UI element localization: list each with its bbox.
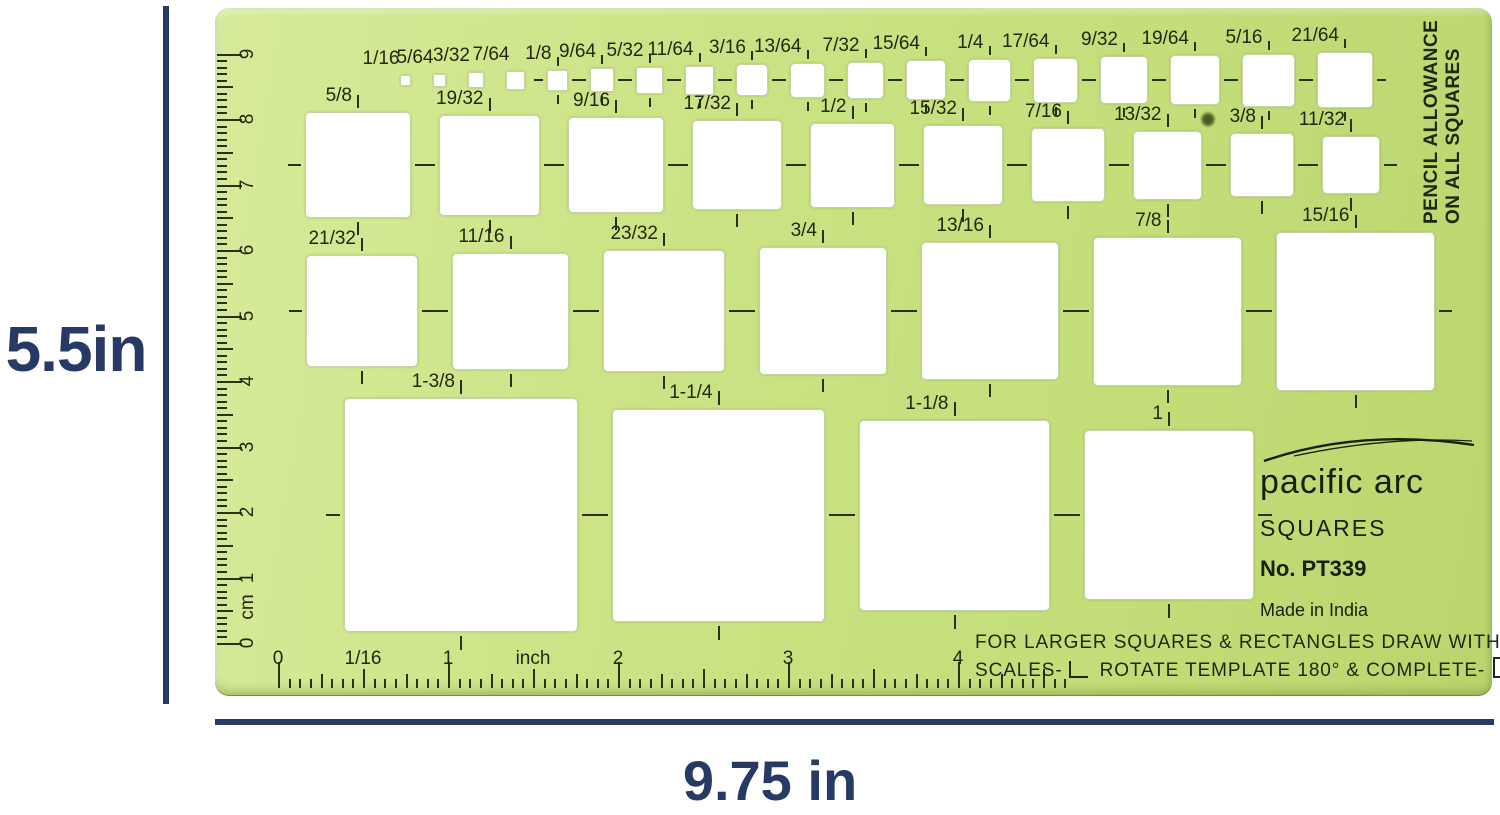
inch-ruler-tick <box>916 674 918 688</box>
square-size-label: 21/32 <box>296 229 356 249</box>
square-left-tick <box>1066 514 1080 516</box>
square-size-label: 1/2 <box>787 97 847 117</box>
square-size-label: 11/64 <box>634 40 694 60</box>
brand-block: pacific arc SQUARES No. PT339 Made in In… <box>1260 434 1485 621</box>
template-square <box>790 63 825 98</box>
template-square <box>603 250 725 372</box>
square-left-tick <box>1157 79 1166 81</box>
cm-ruler-tick <box>217 86 233 88</box>
inch-ruler-tick <box>299 679 301 688</box>
square-left-tick <box>955 79 964 81</box>
cm-ruler-tick <box>217 99 227 101</box>
cm-ruler-tick <box>217 571 227 573</box>
template-square <box>736 64 768 96</box>
square-left-tick <box>675 164 688 166</box>
inch-ruler-tick <box>416 679 418 688</box>
square-right-tick <box>1384 164 1397 166</box>
inch-ruler-tick <box>289 679 291 688</box>
template-square <box>1170 55 1220 105</box>
square-top-tick <box>822 230 824 243</box>
cm-ruler-tick <box>217 204 227 206</box>
cm-ruler-tick <box>217 211 227 213</box>
inch-ruler-tick <box>905 679 907 688</box>
cm-ruler-tick <box>217 145 227 147</box>
inch-ruler-tick <box>661 674 663 688</box>
cm-ruler-tick <box>217 263 227 265</box>
square-bottom-tick <box>460 636 462 650</box>
inch-ruler-tick <box>937 679 939 688</box>
square-size-label: 11/32 <box>1285 110 1345 130</box>
template-square <box>1322 136 1380 194</box>
square-right-tick <box>1439 310 1452 312</box>
template-square <box>506 71 525 90</box>
open-square-icon <box>1069 661 1088 678</box>
template-square <box>810 123 895 208</box>
template-square <box>859 420 1050 611</box>
cm-ruler-tick <box>217 584 227 586</box>
square-size-label: 3/4 <box>757 221 817 241</box>
template-square <box>547 70 568 91</box>
cm-ruler-tick <box>217 499 227 501</box>
cm-ruler-tick <box>217 394 227 396</box>
inch-ruler-tick <box>576 674 578 688</box>
cm-ruler-number: 2 <box>238 502 258 522</box>
brand-swoosh-icon <box>1260 434 1478 464</box>
square-left-tick <box>906 164 919 166</box>
square-left-tick <box>551 164 564 166</box>
height-dimension-label: 5.5in <box>0 312 158 386</box>
square-size-label: 19/64 <box>1129 29 1189 49</box>
template-square <box>590 68 614 92</box>
cm-ruler-tick <box>217 505 227 507</box>
square-bottom-tick <box>865 103 867 112</box>
square-top-tick <box>954 402 956 416</box>
inch-ruler-tick <box>969 679 971 688</box>
cm-ruler-number: 9 <box>238 44 258 64</box>
cm-ruler-number: 4 <box>238 371 258 391</box>
cm-ruler-tick <box>217 93 227 95</box>
square-top-tick <box>1194 42 1196 51</box>
inch-ruler-number: 2 <box>603 649 633 669</box>
cm-ruler-tick <box>217 564 227 566</box>
inch-ruler-tick <box>852 679 854 688</box>
square-left-tick <box>1116 164 1129 166</box>
template-square <box>568 117 664 213</box>
template-square <box>1093 237 1242 386</box>
square-top-tick <box>989 225 991 238</box>
inch-ruler-tick <box>459 679 461 688</box>
square-left-tick <box>723 79 732 81</box>
square-bottom-tick <box>1261 201 1263 214</box>
inch-ruler-tick <box>480 679 482 688</box>
cm-ruler-tick <box>217 224 227 226</box>
inch-ruler-tick <box>522 679 524 688</box>
cm-ruler-tick <box>217 178 227 180</box>
square-bottom-tick <box>1355 395 1357 408</box>
cm-ruler-tick <box>217 309 227 311</box>
square-left-tick <box>326 514 340 516</box>
cm-ruler-tick <box>217 492 227 494</box>
square-left-tick <box>586 310 599 312</box>
inch-ruler-tick <box>607 679 609 688</box>
square-size-label: 19/32 <box>424 89 484 109</box>
cm-ruler-tick <box>217 623 227 625</box>
square-left-tick <box>435 310 448 312</box>
inch-ruler-tick <box>352 679 354 688</box>
square-size-label: 9/32 <box>1058 30 1118 50</box>
inch-ruler-tick <box>831 674 833 688</box>
square-top-tick <box>1167 114 1169 127</box>
inch-ruler-tick <box>406 674 408 688</box>
square-left-tick <box>841 514 855 516</box>
cm-ruler-number: 6 <box>238 240 258 260</box>
square-top-tick <box>1261 116 1263 129</box>
width-dimension-label: 9.75 in <box>570 748 970 813</box>
square-top-tick <box>718 391 720 405</box>
cm-ruler-tick <box>217 597 227 599</box>
cm-ruler-tick <box>217 165 227 167</box>
square-size-label: 3/16 <box>686 38 746 58</box>
template-square <box>305 112 411 218</box>
inch-ruler-tick <box>756 679 758 688</box>
cm-ruler-tick <box>217 80 227 82</box>
inch-ruler-number: 1 <box>433 649 463 669</box>
cm-ruler-tick <box>217 302 227 304</box>
product-series: SQUARES <box>1260 515 1485 542</box>
inch-ruler-tick <box>746 674 748 688</box>
square-size-label: 23/32 <box>598 224 658 244</box>
square-size-label: 5/8 <box>292 86 352 106</box>
square-left-tick <box>777 79 786 81</box>
inch-ruler-tick <box>384 679 386 688</box>
square-size-label: 1-3/8 <box>395 372 455 392</box>
square-bottom-tick <box>1268 111 1270 120</box>
square-left-tick <box>1229 79 1238 81</box>
square-top-tick <box>1055 45 1057 54</box>
template-square <box>1031 128 1105 202</box>
cm-ruler-tick <box>217 191 227 193</box>
square-bottom-tick <box>510 374 512 387</box>
square-top-tick <box>361 238 363 251</box>
cm-ruler-number: 7 <box>238 175 258 195</box>
inch-ruler-tick <box>331 679 333 688</box>
template-square <box>685 66 714 95</box>
cm-ruler-unit-label: cm <box>238 590 258 624</box>
inch-ruler-tick <box>491 674 493 688</box>
inch-ruler-tick <box>639 679 641 688</box>
square-left-tick <box>904 310 917 312</box>
cm-ruler-number: 8 <box>238 109 258 129</box>
height-dimension-line <box>163 6 169 704</box>
inch-ruler-tick <box>533 669 535 688</box>
square-bottom-tick <box>718 626 720 640</box>
square-size-label: 1-1/4 <box>653 383 713 403</box>
template-square <box>452 253 569 370</box>
square-size-label: 1 <box>1103 404 1163 424</box>
inch-ruler-number: 0 <box>263 649 293 669</box>
inch-ruler-tick <box>884 679 886 688</box>
square-left-tick <box>793 164 806 166</box>
cm-ruler-number: 5 <box>238 306 258 326</box>
inch-ruler-tick <box>554 679 556 688</box>
square-top-tick <box>1344 39 1346 48</box>
template-square <box>400 75 411 86</box>
square-left-tick <box>1305 164 1318 166</box>
inch-ruler-tick <box>862 679 864 688</box>
inch-ruler-tick <box>841 679 843 688</box>
cm-ruler-tick <box>217 479 233 481</box>
cm-ruler-tick <box>217 112 227 114</box>
inch-ruler-tick <box>926 679 928 688</box>
square-size-label: 11/16 <box>445 227 505 247</box>
template-square <box>923 125 1003 205</box>
square-left-tick <box>1259 310 1272 312</box>
cm-ruler-tick <box>217 401 227 403</box>
square-right-tick <box>1377 79 1386 81</box>
inch-ruler-tick <box>321 674 323 688</box>
cm-ruler-tick <box>217 158 227 160</box>
square-bottom-tick <box>954 615 956 629</box>
square-top-tick <box>1067 111 1069 124</box>
pencil-allowance-note: PENCIL ALLOWANCE ON ALL SQUARES <box>1421 14 1465 224</box>
square-left-tick <box>1014 164 1027 166</box>
square-left-tick <box>288 164 301 166</box>
square-top-tick <box>489 98 491 111</box>
cm-ruler-number: 1 <box>238 568 258 588</box>
inch-ruler-tick <box>735 679 737 688</box>
inch-ruler-tick <box>809 679 811 688</box>
square-left-tick <box>289 310 302 312</box>
square-left-tick <box>577 79 586 81</box>
cm-ruler-number: 3 <box>238 437 258 457</box>
template-square <box>1276 232 1435 391</box>
inch-ruler-tick <box>374 679 376 688</box>
cm-ruler-tick <box>217 440 227 442</box>
inch-ruler-tick <box>724 679 726 688</box>
cm-ruler-tick <box>217 519 227 521</box>
cm-ruler-tick <box>217 335 227 337</box>
cm-ruler-tick <box>217 414 233 416</box>
square-bottom-tick <box>852 212 854 225</box>
inch-ruler-unit-label: inch <box>503 649 563 669</box>
square-bottom-tick <box>649 98 651 107</box>
cm-ruler-tick <box>217 525 227 527</box>
square-top-tick <box>357 95 359 108</box>
square-top-tick <box>663 233 665 246</box>
square-right-tick <box>573 310 586 312</box>
cm-ruler-tick <box>217 237 227 239</box>
inch-ruler-tick <box>512 679 514 688</box>
square-bottom-tick <box>989 384 991 397</box>
square-left-tick <box>1020 79 1029 81</box>
square-right-tick <box>891 310 904 312</box>
template-square <box>612 409 825 622</box>
square-top-tick <box>1268 41 1270 50</box>
cm-ruler-tick <box>217 604 227 606</box>
cm-ruler-tick <box>217 427 227 429</box>
template-square <box>1242 54 1295 107</box>
inch-ruler-tick <box>682 679 684 688</box>
square-bottom-tick <box>1350 198 1352 211</box>
cm-ruler-tick <box>217 630 227 632</box>
cm-ruler-tick <box>217 361 227 363</box>
inch-ruler-tick <box>469 679 471 688</box>
cm-ruler-tick <box>217 617 227 619</box>
inch-ruler-tick <box>873 669 875 688</box>
cm-ruler-tick <box>217 355 227 357</box>
template-square <box>906 60 946 100</box>
square-left-tick <box>422 164 435 166</box>
square-size-label: 7/8 <box>1102 211 1162 231</box>
inch-ruler-tick <box>342 679 344 688</box>
cm-ruler-tick <box>217 230 227 232</box>
template-square <box>433 74 446 87</box>
square-size-label: 17/64 <box>990 32 1050 52</box>
square-left-tick <box>1087 79 1096 81</box>
cm-ruler-tick <box>217 276 227 278</box>
square-left-tick <box>1076 310 1089 312</box>
inch-ruler-tick <box>437 679 439 688</box>
inch-ruler-tick <box>395 679 397 688</box>
square-right-tick <box>1246 310 1259 312</box>
inch-ruler-tick <box>310 679 312 688</box>
template-square <box>1133 131 1202 200</box>
inch-ruler-graduation-label: 1/16 <box>333 649 393 669</box>
square-size-label: 1-1/8 <box>889 394 949 414</box>
square-top-tick <box>615 100 617 113</box>
square-bottom-tick <box>736 214 738 227</box>
inch-ruler-tick <box>947 679 949 688</box>
cm-ruler-tick <box>217 289 227 291</box>
cm-ruler-tick <box>217 329 227 331</box>
cm-ruler-number: 0 <box>238 633 258 653</box>
square-bottom-tick <box>1168 604 1170 618</box>
cm-ruler-tick <box>217 60 227 62</box>
square-bottom-tick <box>357 222 359 235</box>
brand-name: pacific arc <box>1260 463 1485 502</box>
cm-ruler-tick <box>217 270 227 272</box>
cm-ruler-tick <box>217 610 233 612</box>
inch-ruler-tick <box>692 679 694 688</box>
inch-ruler-tick <box>586 679 588 688</box>
template-square <box>1230 133 1294 197</box>
inch-ruler-tick <box>427 679 429 688</box>
square-bottom-tick <box>1067 206 1069 219</box>
square-left-tick <box>893 79 902 81</box>
inch-ruler-tick <box>820 679 822 688</box>
cm-ruler-tick <box>217 152 233 154</box>
square-size-label: 15/16 <box>1290 206 1350 226</box>
surface-speck <box>1201 112 1215 127</box>
cm-ruler-tick <box>217 486 227 488</box>
cm-ruler-tick <box>217 106 227 108</box>
pencil-allowance-note-line2: ON ALL SQUARES <box>1443 14 1465 224</box>
model-number: No. PT339 <box>1260 556 1485 582</box>
cm-ruler-tick <box>217 368 227 370</box>
square-size-label: 5/16 <box>1203 28 1263 48</box>
template-square <box>1084 430 1254 600</box>
template-square <box>468 72 484 88</box>
cm-ruler-tick <box>217 342 227 344</box>
square-left-tick <box>1304 79 1313 81</box>
square-top-tick <box>1350 119 1352 132</box>
cm-ruler-tick <box>217 460 227 462</box>
template-square <box>1317 52 1373 108</box>
complete-square-icon <box>1493 657 1500 678</box>
square-bottom-tick <box>989 106 991 115</box>
inch-ruler-tick <box>501 679 503 688</box>
inch-ruler-number: 4 <box>943 649 973 669</box>
cm-ruler-tick <box>217 407 227 409</box>
template-square <box>306 255 418 367</box>
cm-ruler-tick <box>217 296 227 298</box>
square-size-label: 13/16 <box>924 216 984 236</box>
cm-ruler-tick <box>217 132 227 134</box>
origin-label: Made in India <box>1260 600 1485 621</box>
cm-ruler-tick <box>217 374 227 376</box>
template-square <box>344 398 578 632</box>
squares-stencil-template: 1/165/643/327/641/89/645/3211/643/1613/6… <box>215 8 1492 696</box>
cm-ruler-tick <box>217 473 227 475</box>
inch-ruler-tick <box>363 669 365 688</box>
square-bottom-tick <box>822 379 824 392</box>
square-left-tick <box>834 79 843 81</box>
square-right-tick <box>729 310 742 312</box>
cm-ruler-tick <box>217 551 227 553</box>
cm-ruler-tick <box>217 538 227 540</box>
cm-ruler-tick <box>217 545 233 547</box>
square-size-label: 17/32 <box>671 94 731 114</box>
square-size-label: 7/32 <box>800 36 860 56</box>
template-square <box>439 115 540 216</box>
usage-note-rotate-text: ROTATE TEMPLATE 180° & COMPLETE- <box>1100 660 1486 681</box>
cm-ruler-tick <box>217 283 233 285</box>
cm-ruler-tick <box>217 433 227 435</box>
pencil-allowance-note-line1: PENCIL ALLOWANCE <box>1421 14 1443 224</box>
square-top-tick <box>460 380 462 394</box>
cm-ruler-tick <box>217 171 227 173</box>
template-square <box>968 59 1011 102</box>
template-square <box>847 62 884 99</box>
cm-ruler-tick <box>217 139 227 141</box>
square-top-tick <box>1123 43 1125 52</box>
cm-ruler-tick <box>217 126 227 128</box>
cm-ruler-tick <box>217 388 227 390</box>
square-top-tick <box>1167 220 1169 233</box>
inch-ruler-tick <box>894 679 896 688</box>
product-photo: 5.5in 9.75 in 1/165/643/327/641/89/645/3… <box>0 0 1500 815</box>
cm-ruler-tick <box>217 73 227 75</box>
square-size-label: 7/16 <box>1002 102 1062 122</box>
cm-ruler-tick <box>217 558 227 560</box>
inch-ruler-tick <box>565 679 567 688</box>
inch-ruler-tick <box>767 679 769 688</box>
inch-ruler-tick <box>714 679 716 688</box>
square-left-tick <box>594 514 608 516</box>
template-square <box>921 242 1059 380</box>
square-size-label: 15/64 <box>860 34 920 54</box>
square-size-label: 15/32 <box>897 99 957 119</box>
template-square <box>759 247 887 375</box>
inch-ruler-tick <box>703 669 705 688</box>
template-square <box>636 67 663 94</box>
template-square <box>1033 58 1078 103</box>
square-size-label: 13/32 <box>1102 105 1162 125</box>
square-size-label: 9/16 <box>550 91 610 111</box>
inch-ruler-tick <box>650 679 652 688</box>
cm-ruler-tick <box>217 420 227 422</box>
usage-note-line2: SCALES-ROTATE TEMPLATE 180° & COMPLETE- <box>975 657 1500 682</box>
